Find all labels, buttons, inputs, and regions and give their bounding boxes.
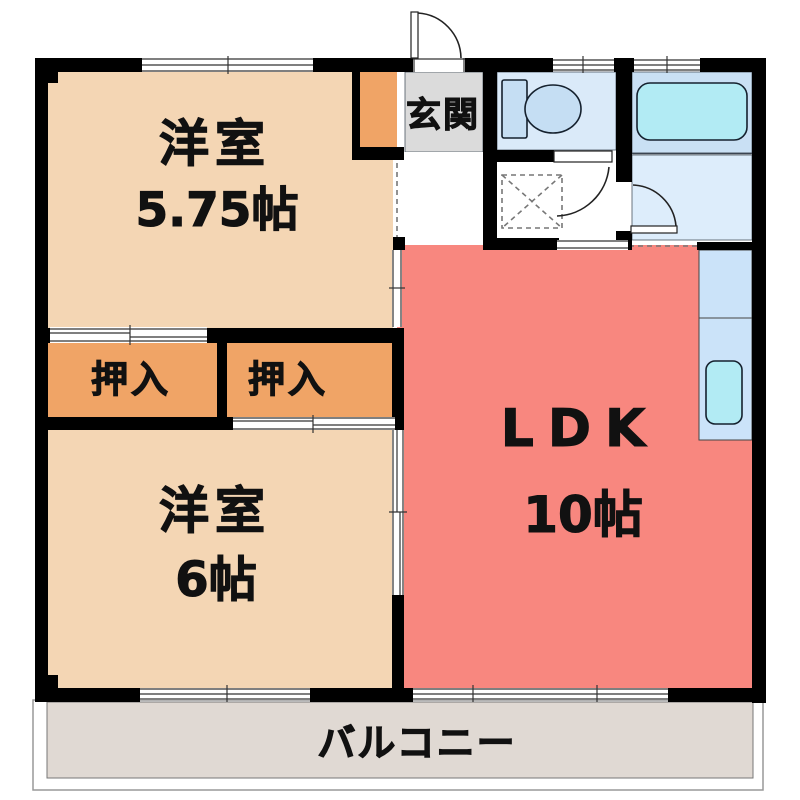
closet-right-label: 押入	[248, 358, 328, 401]
floor-plan: 洋室 5.75帖 玄関 押入 押入 洋室 6帖 LDK 10帖 バルコニー	[0, 0, 800, 800]
balcony-label: バルコニー	[317, 721, 516, 765]
entrance-door-arc	[418, 13, 461, 58]
washroom-floor	[497, 162, 616, 238]
entrance-label: 玄関	[406, 96, 480, 136]
hallway-floor	[397, 152, 483, 247]
entrance-door	[411, 12, 465, 72]
bedroom2-name-label: 洋室	[159, 482, 271, 540]
toilet-bowl-icon	[525, 85, 581, 133]
bedroom1-size-label: 5.75帖	[136, 183, 299, 238]
bathtub-icon	[637, 83, 747, 140]
ldk-size-label: 10帖	[523, 486, 643, 544]
closet-left-label: 押入	[91, 358, 171, 401]
bedroom2-size-label: 6帖	[175, 552, 256, 608]
floor-plan-canvas: 洋室 5.75帖 玄関 押入 押入 洋室 6帖 LDK 10帖 バルコニー	[0, 0, 800, 800]
kitchen-sink-icon	[706, 361, 742, 424]
entrance-door-leaf	[411, 12, 418, 58]
toilet-tank-icon	[502, 80, 527, 138]
shoe-cabinet	[360, 72, 397, 147]
bedroom1-name-label: 洋室	[159, 115, 271, 173]
ldk-name-label: LDK	[501, 399, 660, 459]
